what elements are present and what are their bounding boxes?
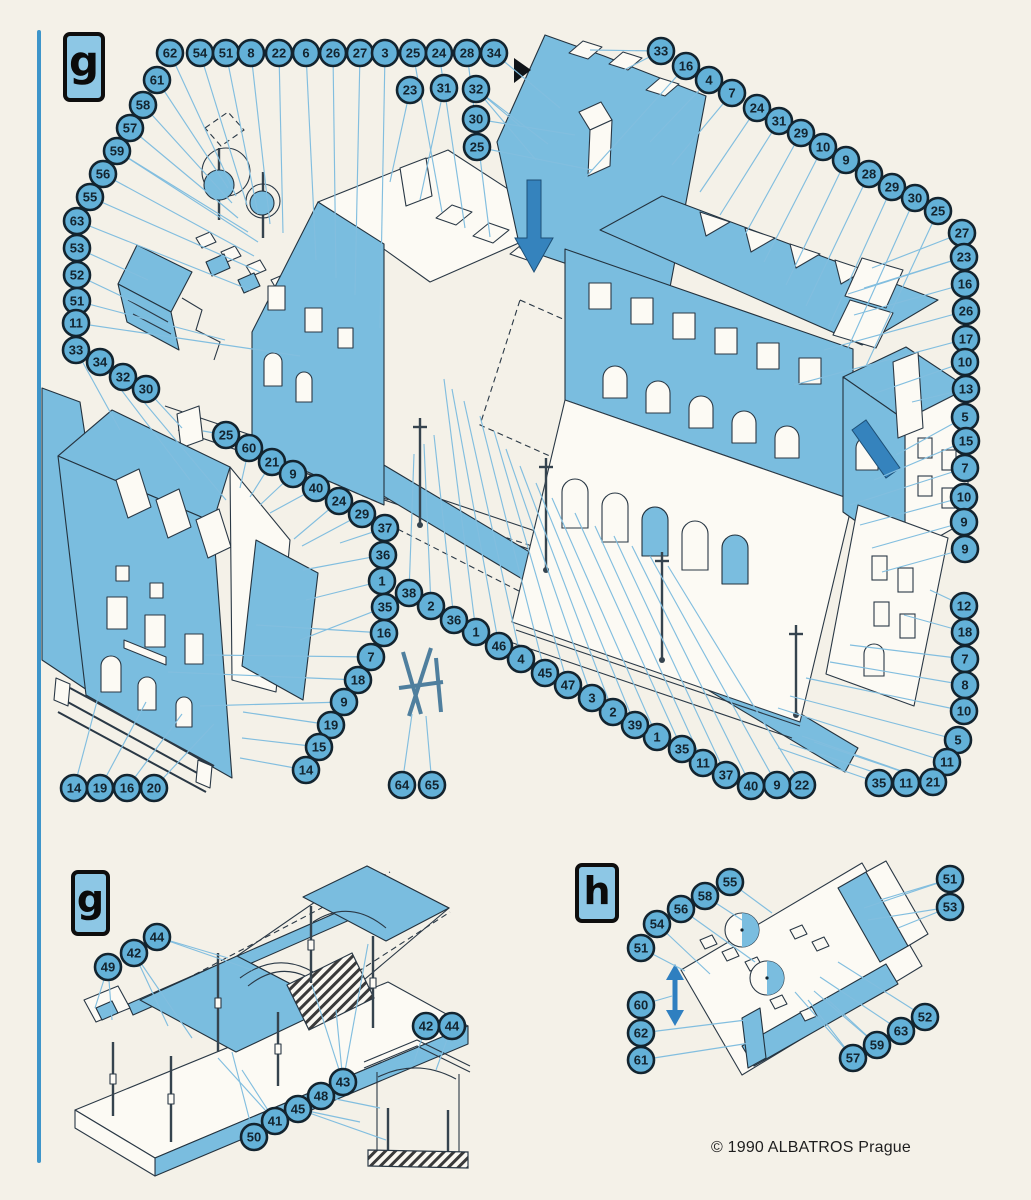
trestle bbox=[399, 648, 443, 716]
svg-text:51: 51 bbox=[634, 941, 648, 956]
svg-text:61: 61 bbox=[150, 73, 164, 88]
svg-text:57: 57 bbox=[846, 1051, 860, 1066]
svg-text:14: 14 bbox=[67, 781, 82, 796]
svg-text:19: 19 bbox=[93, 781, 107, 796]
svg-text:6: 6 bbox=[302, 46, 309, 61]
callout-49: 49 bbox=[95, 954, 121, 980]
svg-text:61: 61 bbox=[634, 1053, 648, 1068]
callout-8: 8 bbox=[238, 40, 264, 66]
section-label-g-canopy: g bbox=[71, 870, 110, 936]
callout-4: 4 bbox=[696, 67, 722, 93]
svg-text:25: 25 bbox=[406, 46, 420, 61]
svg-text:2: 2 bbox=[609, 705, 616, 720]
callout-13: 13 bbox=[953, 376, 979, 402]
callout-26: 26 bbox=[953, 298, 979, 324]
callout-58: 58 bbox=[130, 92, 156, 118]
callout-11: 11 bbox=[63, 310, 89, 336]
callout-25: 25 bbox=[464, 134, 490, 160]
callout-28: 28 bbox=[856, 161, 882, 187]
svg-text:26: 26 bbox=[326, 46, 340, 61]
svg-text:7: 7 bbox=[961, 652, 968, 667]
callout-38: 38 bbox=[396, 580, 422, 606]
svg-text:30: 30 bbox=[469, 112, 483, 127]
svg-text:11: 11 bbox=[899, 776, 913, 791]
svg-text:29: 29 bbox=[355, 507, 369, 522]
callout-7: 7 bbox=[358, 644, 384, 670]
svg-text:36: 36 bbox=[447, 613, 461, 628]
callout-6: 6 bbox=[293, 40, 319, 66]
callout-52: 52 bbox=[64, 262, 90, 288]
callout-22: 22 bbox=[266, 40, 292, 66]
svg-text:12: 12 bbox=[957, 599, 971, 614]
svg-text:65: 65 bbox=[425, 778, 439, 793]
callout-55: 55 bbox=[717, 869, 743, 895]
svg-text:51: 51 bbox=[943, 872, 957, 887]
svg-text:1: 1 bbox=[472, 625, 479, 640]
svg-text:46: 46 bbox=[492, 639, 506, 654]
svg-text:40: 40 bbox=[309, 481, 323, 496]
callout-9: 9 bbox=[952, 536, 978, 562]
callout-35: 35 bbox=[866, 770, 892, 796]
callout-35: 35 bbox=[669, 736, 695, 762]
svg-text:50: 50 bbox=[247, 1130, 261, 1145]
callout-46: 46 bbox=[486, 633, 512, 659]
svg-text:34: 34 bbox=[93, 355, 108, 370]
callout-53: 53 bbox=[64, 235, 90, 261]
callout-14: 14 bbox=[293, 757, 319, 783]
callout-31: 31 bbox=[431, 75, 457, 101]
svg-text:25: 25 bbox=[470, 140, 484, 155]
section-label-g-main: g bbox=[63, 32, 105, 102]
callout-14: 14 bbox=[61, 775, 87, 801]
svg-text:9: 9 bbox=[340, 695, 347, 710]
svg-text:63: 63 bbox=[70, 214, 84, 229]
svg-text:54: 54 bbox=[193, 46, 208, 61]
svg-text:52: 52 bbox=[70, 268, 84, 283]
svg-text:3: 3 bbox=[588, 691, 595, 706]
svg-text:30: 30 bbox=[139, 382, 153, 397]
svg-text:24: 24 bbox=[332, 494, 347, 509]
svg-text:27: 27 bbox=[353, 46, 367, 61]
callout-28: 28 bbox=[454, 40, 480, 66]
callout-9: 9 bbox=[331, 689, 357, 715]
callout-59: 59 bbox=[104, 138, 130, 164]
callout-48: 48 bbox=[308, 1083, 334, 1109]
svg-text:58: 58 bbox=[698, 889, 712, 904]
callout-29: 29 bbox=[349, 501, 375, 527]
svg-text:23: 23 bbox=[403, 83, 417, 98]
svg-text:51: 51 bbox=[70, 294, 84, 309]
svg-text:45: 45 bbox=[538, 666, 552, 681]
svg-text:9: 9 bbox=[842, 153, 849, 168]
svg-text:36: 36 bbox=[376, 548, 390, 563]
callout-61: 61 bbox=[628, 1047, 654, 1073]
callout-12: 12 bbox=[951, 593, 977, 619]
callout-25: 25 bbox=[400, 40, 426, 66]
svg-text:10: 10 bbox=[957, 490, 971, 505]
svg-text:9: 9 bbox=[961, 542, 968, 557]
svg-text:34: 34 bbox=[487, 46, 502, 61]
svg-text:55: 55 bbox=[83, 190, 97, 205]
callout-35: 35 bbox=[372, 594, 398, 620]
svg-text:1: 1 bbox=[378, 574, 385, 589]
callout-51: 51 bbox=[937, 866, 963, 892]
callout-58: 58 bbox=[692, 883, 718, 909]
svg-text:23: 23 bbox=[957, 250, 971, 265]
svg-text:8: 8 bbox=[961, 678, 968, 693]
callout-54: 54 bbox=[644, 911, 670, 937]
svg-text:41: 41 bbox=[268, 1114, 282, 1129]
callout-11: 11 bbox=[893, 770, 919, 796]
svg-text:37: 37 bbox=[378, 521, 392, 536]
callout-61: 61 bbox=[144, 67, 170, 93]
callout-36: 36 bbox=[441, 607, 467, 633]
svg-text:4: 4 bbox=[517, 652, 525, 667]
svg-text:55: 55 bbox=[723, 875, 737, 890]
callout-36: 36 bbox=[370, 542, 396, 568]
callout-30: 30 bbox=[133, 376, 159, 402]
svg-text:2: 2 bbox=[427, 599, 434, 614]
callout-16: 16 bbox=[673, 53, 699, 79]
svg-text:13: 13 bbox=[959, 382, 973, 397]
callout-1: 1 bbox=[369, 568, 395, 594]
svg-text:56: 56 bbox=[674, 902, 688, 917]
svg-text:37: 37 bbox=[719, 768, 733, 783]
svg-text:5: 5 bbox=[954, 733, 961, 748]
svg-text:24: 24 bbox=[432, 46, 447, 61]
callout-26: 26 bbox=[320, 40, 346, 66]
svg-text:11: 11 bbox=[940, 755, 954, 770]
svg-text:59: 59 bbox=[110, 144, 124, 159]
callout-20: 20 bbox=[141, 775, 167, 801]
svg-text:35: 35 bbox=[675, 742, 689, 757]
svg-text:25: 25 bbox=[931, 204, 945, 219]
callout-10: 10 bbox=[951, 698, 977, 724]
callout-33: 33 bbox=[63, 337, 89, 363]
callout-34: 34 bbox=[481, 40, 507, 66]
callout-33: 33 bbox=[648, 38, 674, 64]
callout-25: 25 bbox=[213, 422, 239, 448]
svg-text:4: 4 bbox=[705, 73, 713, 88]
callout-56: 56 bbox=[668, 896, 694, 922]
callout-16: 16 bbox=[114, 775, 140, 801]
svg-text:17: 17 bbox=[959, 332, 973, 347]
svg-text:18: 18 bbox=[351, 673, 365, 688]
svg-text:42: 42 bbox=[419, 1019, 433, 1034]
svg-text:10: 10 bbox=[957, 704, 971, 719]
callout-7: 7 bbox=[952, 455, 978, 481]
callout-59: 59 bbox=[864, 1032, 890, 1058]
svg-text:20: 20 bbox=[147, 781, 161, 796]
callout-62: 62 bbox=[157, 40, 183, 66]
svg-text:24: 24 bbox=[750, 101, 765, 116]
callout-18: 18 bbox=[952, 619, 978, 645]
svg-text:33: 33 bbox=[69, 343, 83, 358]
callout-23: 23 bbox=[951, 244, 977, 270]
callout-15: 15 bbox=[953, 428, 979, 454]
svg-text:16: 16 bbox=[679, 59, 693, 74]
callout-57: 57 bbox=[840, 1045, 866, 1071]
svg-text:63: 63 bbox=[894, 1024, 908, 1039]
callout-16: 16 bbox=[952, 271, 978, 297]
svg-text:54: 54 bbox=[650, 917, 665, 932]
callout-24: 24 bbox=[426, 40, 452, 66]
svg-text:35: 35 bbox=[872, 776, 886, 791]
svg-text:38: 38 bbox=[402, 586, 416, 601]
callout-9: 9 bbox=[833, 147, 859, 173]
svg-text:44: 44 bbox=[150, 930, 165, 945]
callout-55: 55 bbox=[77, 184, 103, 210]
svg-text:53: 53 bbox=[943, 900, 957, 915]
copyright-text: © 1990 ALBATROS Prague bbox=[711, 1139, 911, 1157]
svg-text:30: 30 bbox=[908, 191, 922, 206]
svg-text:32: 32 bbox=[116, 370, 130, 385]
svg-text:7: 7 bbox=[728, 86, 735, 101]
callout-54: 54 bbox=[187, 40, 213, 66]
svg-text:21: 21 bbox=[926, 775, 940, 790]
callout-16: 16 bbox=[371, 620, 397, 646]
callout-42: 42 bbox=[413, 1013, 439, 1039]
callout-65: 65 bbox=[419, 772, 445, 798]
svg-text:28: 28 bbox=[862, 167, 876, 182]
callout-10: 10 bbox=[810, 134, 836, 160]
callout-60: 60 bbox=[628, 992, 654, 1018]
callout-19: 19 bbox=[87, 775, 113, 801]
svg-text:16: 16 bbox=[958, 277, 972, 292]
callout-9: 9 bbox=[764, 772, 790, 798]
svg-text:59: 59 bbox=[870, 1038, 884, 1053]
svg-text:42: 42 bbox=[127, 946, 141, 961]
svg-text:48: 48 bbox=[314, 1089, 328, 1104]
callout-32: 32 bbox=[463, 76, 489, 102]
svg-text:31: 31 bbox=[437, 81, 451, 96]
callout-8: 8 bbox=[952, 672, 978, 698]
callout-34: 34 bbox=[87, 349, 113, 375]
svg-text:49: 49 bbox=[101, 960, 115, 975]
svg-text:10: 10 bbox=[816, 140, 830, 155]
callout-40: 40 bbox=[738, 773, 764, 799]
callout-63: 63 bbox=[888, 1018, 914, 1044]
svg-text:45: 45 bbox=[291, 1102, 305, 1117]
diagram-art: 6254518226262732524283433164724312910928… bbox=[0, 0, 1031, 1200]
svg-text:27: 27 bbox=[955, 226, 969, 241]
svg-text:58: 58 bbox=[136, 98, 150, 113]
callout-64: 64 bbox=[389, 772, 415, 798]
svg-text:5: 5 bbox=[961, 410, 968, 425]
callout-27: 27 bbox=[347, 40, 373, 66]
svg-text:32: 32 bbox=[469, 82, 483, 97]
svg-text:43: 43 bbox=[336, 1075, 350, 1090]
callout-50: 50 bbox=[241, 1124, 267, 1150]
svg-text:40: 40 bbox=[744, 779, 758, 794]
callout-22: 22 bbox=[789, 772, 815, 798]
section-label-h-detail: h bbox=[575, 863, 619, 923]
callout-7: 7 bbox=[952, 646, 978, 672]
callout-52: 52 bbox=[912, 1004, 938, 1030]
svg-text:51: 51 bbox=[219, 46, 233, 61]
svg-text:29: 29 bbox=[794, 126, 808, 141]
svg-text:39: 39 bbox=[628, 718, 642, 733]
svg-text:9: 9 bbox=[773, 778, 780, 793]
svg-text:26: 26 bbox=[959, 304, 973, 319]
svg-text:22: 22 bbox=[795, 778, 809, 793]
callout-27: 27 bbox=[949, 220, 975, 246]
svg-text:11: 11 bbox=[69, 316, 83, 331]
callout-30: 30 bbox=[463, 106, 489, 132]
svg-text:60: 60 bbox=[634, 998, 648, 1013]
callout-56: 56 bbox=[90, 161, 116, 187]
svg-text:9: 9 bbox=[289, 467, 296, 482]
svg-text:7: 7 bbox=[367, 650, 374, 665]
callout-51: 51 bbox=[628, 935, 654, 961]
callout-53: 53 bbox=[937, 894, 963, 920]
svg-text:62: 62 bbox=[163, 46, 177, 61]
callout-3: 3 bbox=[372, 40, 398, 66]
svg-text:16: 16 bbox=[377, 626, 391, 641]
svg-text:15: 15 bbox=[959, 434, 973, 449]
callout-44: 44 bbox=[144, 924, 170, 950]
svg-text:7: 7 bbox=[961, 461, 968, 476]
callout-10: 10 bbox=[951, 484, 977, 510]
svg-text:28: 28 bbox=[460, 46, 474, 61]
svg-text:29: 29 bbox=[885, 180, 899, 195]
svg-text:18: 18 bbox=[958, 625, 972, 640]
svg-text:33: 33 bbox=[654, 44, 668, 59]
svg-text:1: 1 bbox=[653, 730, 660, 745]
svg-text:47: 47 bbox=[561, 678, 575, 693]
svg-text:22: 22 bbox=[272, 46, 286, 61]
callout-30: 30 bbox=[902, 185, 928, 211]
callout-44: 44 bbox=[439, 1013, 465, 1039]
callout-51: 51 bbox=[213, 40, 239, 66]
callout-60: 60 bbox=[236, 435, 262, 461]
svg-text:9: 9 bbox=[960, 515, 967, 530]
svg-text:19: 19 bbox=[324, 718, 338, 733]
svg-text:60: 60 bbox=[242, 441, 256, 456]
svg-text:62: 62 bbox=[634, 1026, 648, 1041]
svg-text:44: 44 bbox=[445, 1019, 460, 1034]
svg-text:64: 64 bbox=[395, 778, 410, 793]
callout-37: 37 bbox=[372, 515, 398, 541]
callout-15: 15 bbox=[306, 734, 332, 760]
callout-24: 24 bbox=[326, 488, 352, 514]
callout-5: 5 bbox=[952, 404, 978, 430]
callout-10: 10 bbox=[952, 349, 978, 375]
callout-9: 9 bbox=[280, 461, 306, 487]
callout-7: 7 bbox=[719, 80, 745, 106]
svg-text:3: 3 bbox=[381, 46, 388, 61]
callout-62: 62 bbox=[628, 1020, 654, 1046]
callout-63: 63 bbox=[64, 208, 90, 234]
svg-text:31: 31 bbox=[772, 114, 786, 129]
svg-text:53: 53 bbox=[70, 241, 84, 256]
svg-text:14: 14 bbox=[299, 763, 314, 778]
callout-25: 25 bbox=[925, 198, 951, 224]
callout-42: 42 bbox=[121, 940, 147, 966]
svg-text:35: 35 bbox=[378, 600, 392, 615]
svg-text:15: 15 bbox=[312, 740, 326, 755]
svg-text:21: 21 bbox=[265, 455, 279, 470]
callout-21: 21 bbox=[920, 769, 946, 795]
svg-text:10: 10 bbox=[958, 355, 972, 370]
callout-23: 23 bbox=[397, 77, 423, 103]
svg-text:57: 57 bbox=[123, 121, 137, 136]
callout-40: 40 bbox=[303, 475, 329, 501]
svg-text:8: 8 bbox=[247, 46, 254, 61]
callout-9: 9 bbox=[951, 509, 977, 535]
callout-57: 57 bbox=[117, 115, 143, 141]
svg-text:56: 56 bbox=[96, 167, 110, 182]
svg-text:16: 16 bbox=[120, 781, 134, 796]
svg-text:52: 52 bbox=[918, 1010, 932, 1025]
svg-text:25: 25 bbox=[219, 428, 233, 443]
svg-text:11: 11 bbox=[696, 756, 710, 771]
instruction-page: 6254518226262732524283433164724312910928… bbox=[0, 0, 1031, 1200]
callout-3: 3 bbox=[579, 685, 605, 711]
callout-45: 45 bbox=[532, 660, 558, 686]
